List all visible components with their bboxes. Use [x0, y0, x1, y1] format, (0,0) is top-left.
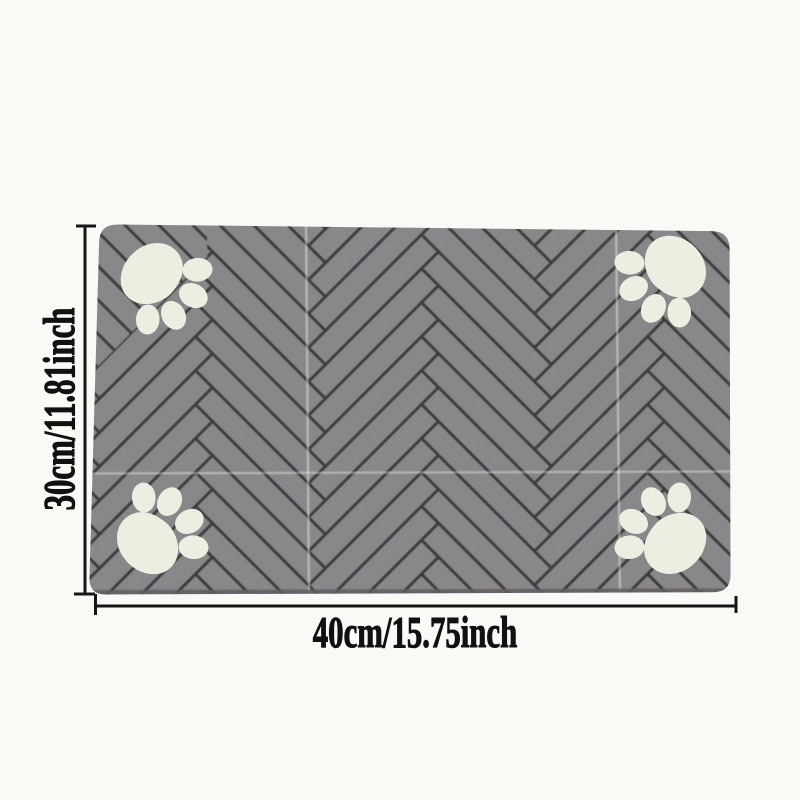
svg-text:40cm/15.75inch: 40cm/15.75inch [313, 609, 517, 658]
svg-text:30cm/11.81inch: 30cm/11.81inch [36, 308, 85, 511]
